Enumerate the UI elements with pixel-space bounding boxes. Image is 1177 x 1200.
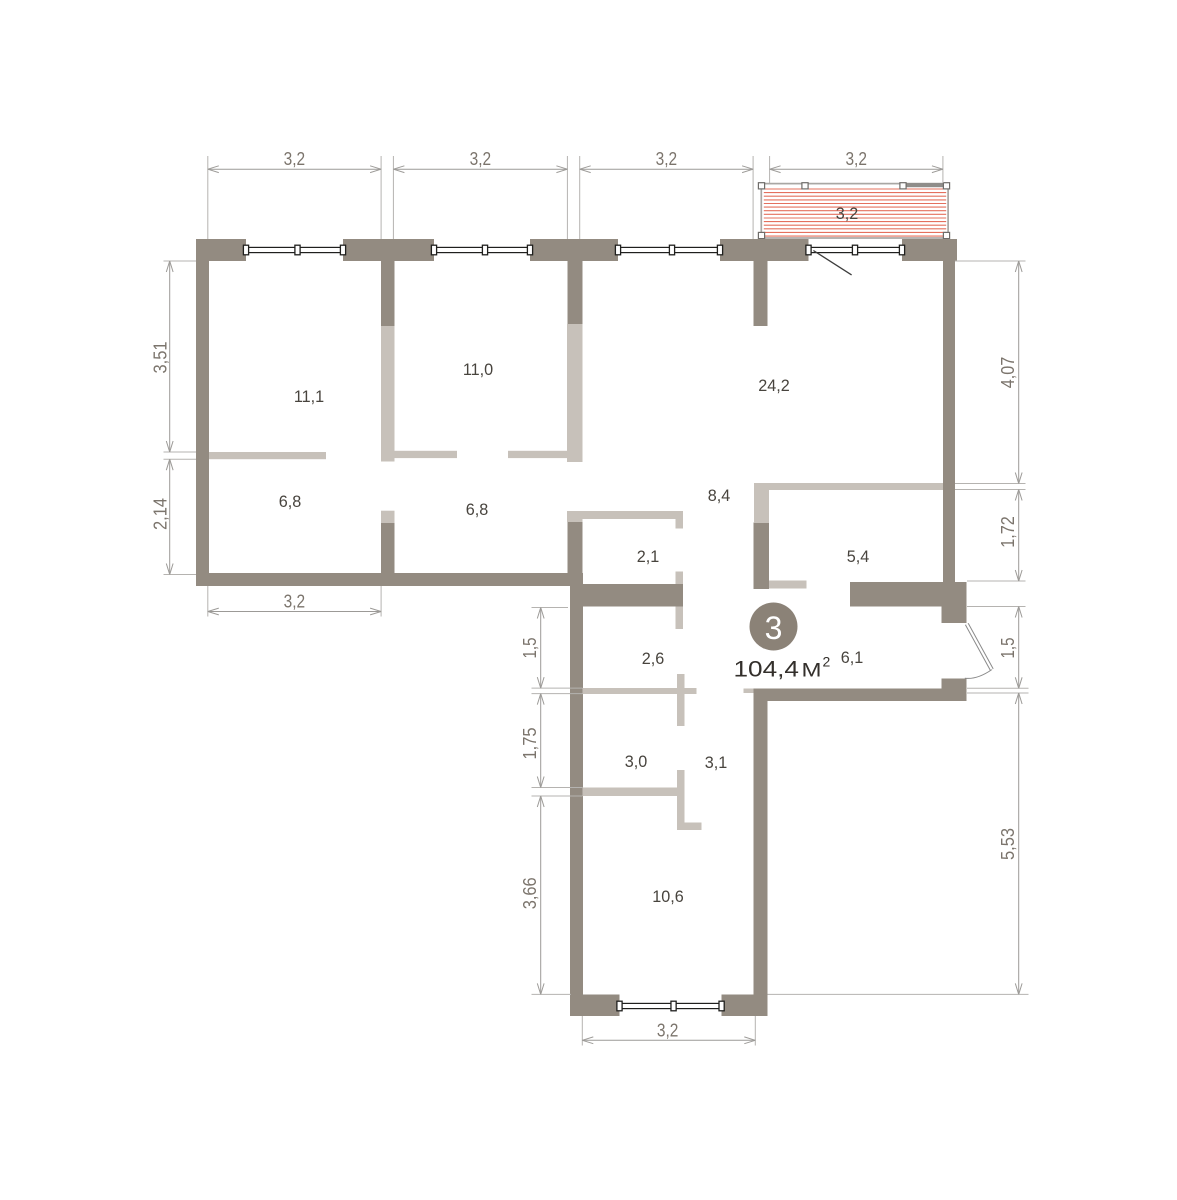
svg-text:3,1: 3,1 <box>705 754 728 772</box>
svg-text:3,2: 3,2 <box>657 1020 679 1040</box>
svg-text:104,4: 104,4 <box>734 657 800 682</box>
svg-text:3,2: 3,2 <box>470 149 492 169</box>
svg-text:5,4: 5,4 <box>847 548 870 566</box>
svg-text:6,1: 6,1 <box>841 649 864 667</box>
svg-text:3,2: 3,2 <box>656 149 678 169</box>
svg-text:3,2: 3,2 <box>284 149 306 169</box>
svg-text:2: 2 <box>823 654 831 670</box>
svg-text:3: 3 <box>765 610 783 646</box>
svg-text:8,4: 8,4 <box>708 487 731 505</box>
svg-text:24,2: 24,2 <box>758 377 790 395</box>
svg-text:3,2: 3,2 <box>284 592 306 612</box>
svg-text:11,1: 11,1 <box>294 388 324 406</box>
svg-text:6,8: 6,8 <box>466 501 489 519</box>
svg-text:6,8: 6,8 <box>279 493 302 511</box>
svg-text:2,14: 2,14 <box>150 498 170 530</box>
svg-text:5,53: 5,53 <box>998 828 1018 860</box>
svg-text:М: М <box>802 660 822 682</box>
svg-text:3,0: 3,0 <box>625 753 648 771</box>
svg-text:1,75: 1,75 <box>520 728 540 760</box>
svg-text:3,2: 3,2 <box>836 205 859 223</box>
svg-text:2,6: 2,6 <box>642 650 665 668</box>
svg-text:3,66: 3,66 <box>520 877 540 909</box>
svg-text:4,07: 4,07 <box>998 357 1018 389</box>
svg-text:1,5: 1,5 <box>520 638 540 659</box>
svg-text:10,6: 10,6 <box>652 888 684 906</box>
svg-text:1,72: 1,72 <box>998 516 1018 548</box>
svg-text:3,51: 3,51 <box>150 342 170 374</box>
svg-text:2,1: 2,1 <box>637 548 660 566</box>
svg-text:3,2: 3,2 <box>845 149 867 169</box>
svg-text:11,0: 11,0 <box>463 361 493 379</box>
svg-text:1,5: 1,5 <box>998 638 1018 659</box>
